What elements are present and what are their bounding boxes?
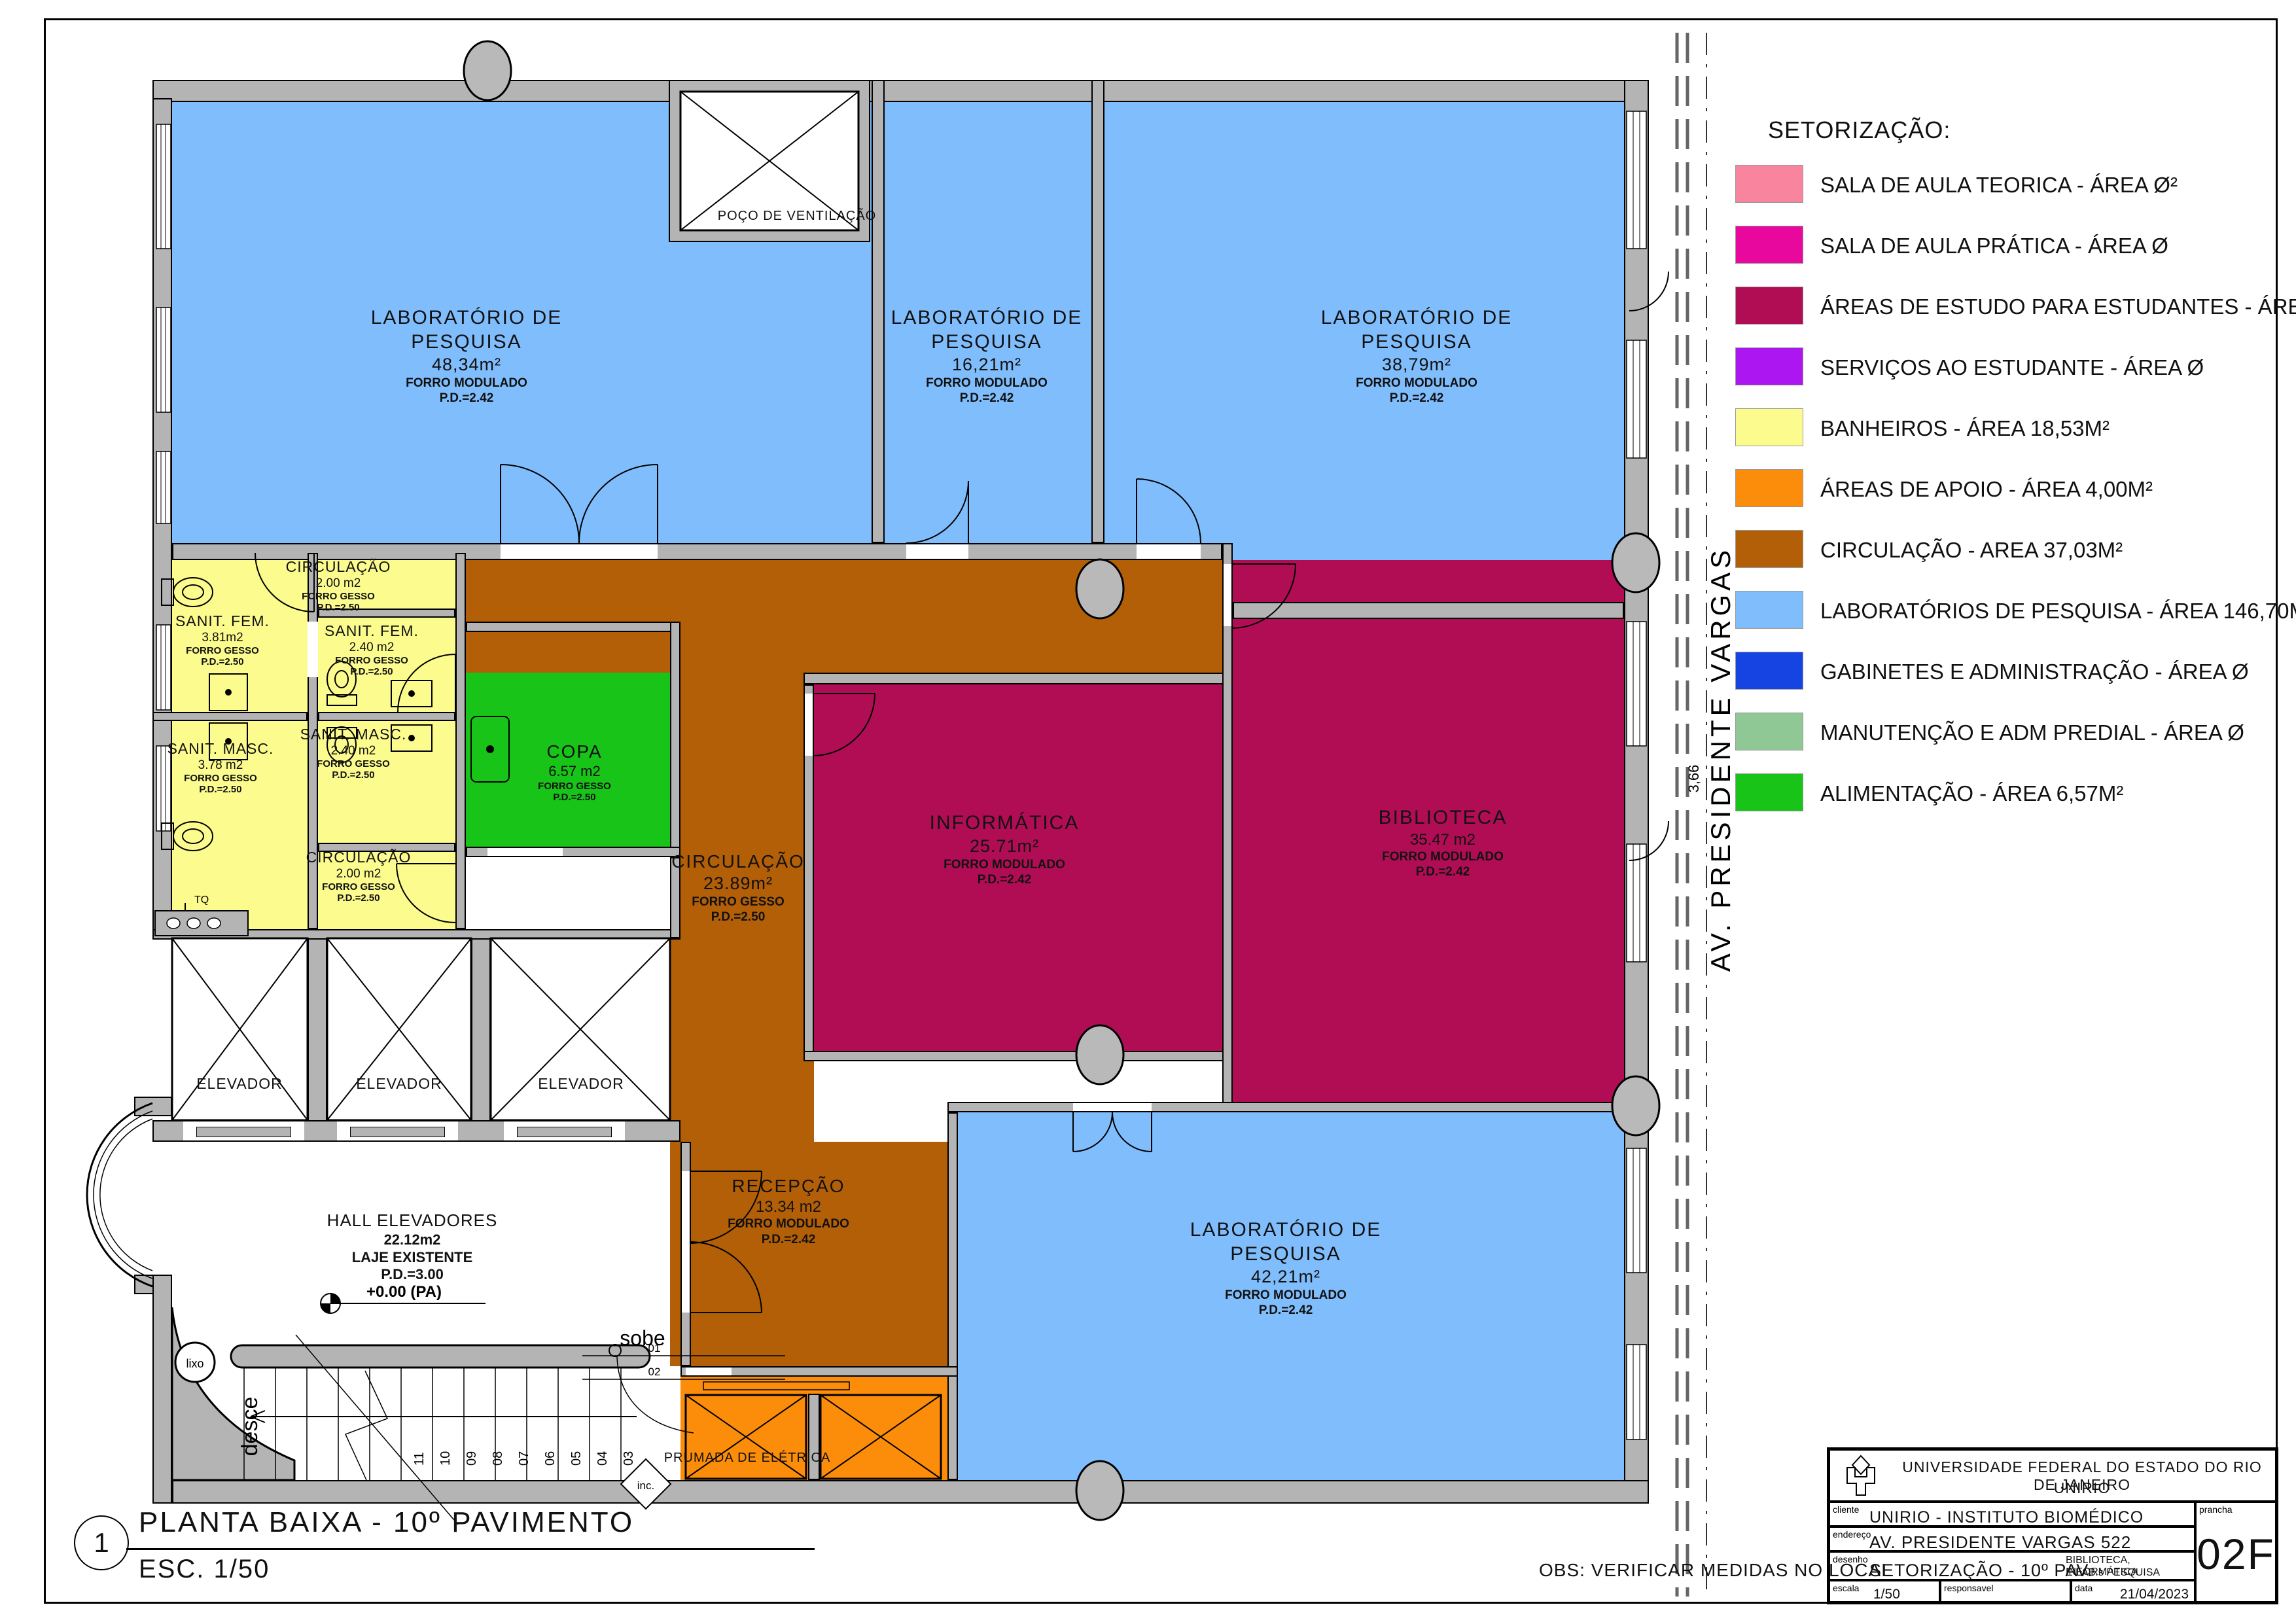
legend-item: ÁREAS DE APOIO - ÁREA 4,00M² [1735, 469, 2278, 507]
legend-swatch [1735, 347, 1803, 385]
wall [947, 1112, 958, 1480]
legend-item: CIRCULAÇÃO - AREA 37,03M² [1735, 530, 2278, 568]
drawing-title: PLANTA BAIXA - 10º PAVIMENTO [139, 1506, 634, 1539]
label-circ-bottom: CIRCULAÇÃO 2.00 m2 FORRO GESSOP.D.=2.50 [306, 848, 412, 904]
scale-value: 1/50 [1873, 1587, 1900, 1602]
label-prumada: PRUMADA DE ELÉTRICA [664, 1450, 831, 1466]
label-lab2: LABORATÓRIO DEPESQUISA 16,21m² FORRO MOD… [891, 306, 1083, 406]
wall [308, 938, 327, 1121]
legend-item: GABINETES E ADMINISTRAÇÃO - ÁREA Ø [1735, 652, 2278, 690]
wall [1233, 602, 1624, 619]
wall [152, 98, 172, 938]
drawing-title-value: SETORIZAÇÃO - 10º PAV. [1869, 1561, 2093, 1581]
legend-item: LABORATÓRIOS DE PESQUISA - ÁREA 146,70M² [1735, 591, 2278, 629]
legend-swatch [1735, 652, 1803, 690]
wall [318, 712, 455, 721]
legend-swatch [1735, 591, 1803, 629]
label-lab4: LABORATÓRIO DEPESQUISA 42,21m² FORRO MOD… [1190, 1218, 1382, 1318]
date-value: 21/04/2023 [2120, 1587, 2189, 1602]
wall [172, 1480, 1649, 1504]
label-sanit-masc-2: SANIT. MASC. 2.40 m2 FORRO GESSOP.D.=2.5… [300, 725, 407, 781]
wall [808, 1394, 820, 1480]
drawing-sheet: lixo 11 10 09 08 07 06 05 04 [0, 0, 2296, 1624]
label-hall: HALL ELEVADORES 22.12m2 LAJE EXISTENTE P… [327, 1210, 498, 1284]
door-opening [682, 1171, 690, 1313]
wall [466, 622, 680, 632]
elevator-door [517, 1127, 612, 1137]
label-elevador-2: ELEVADOR [356, 1074, 442, 1093]
titleblock-endereco: endereço AV. PRESIDENTE VARGAS 522 [1829, 1527, 2195, 1551]
wall [804, 673, 1233, 684]
wall [152, 929, 680, 940]
titleblock-prancha: prancha 02F [2195, 1502, 2276, 1602]
label-circ-top: CIRCULAÇÃO 2.00 m2 FORRO GESSOP.D.=2.50 [286, 557, 391, 614]
label-biblioteca: BIBLIOTECA 35.47 m2 FORRO MODULADOP.D.=2… [1379, 806, 1508, 879]
legend-item: MANUTENÇÃO E ADM PREDIAL - ÁREA Ø [1735, 713, 2278, 750]
titleblock-header: UNIVERSIDADE FEDERAL DO ESTADO DO RIO DE… [1829, 1449, 2276, 1502]
wall [152, 712, 308, 721]
legend-swatch [1735, 287, 1803, 325]
unirio-logo [1838, 1453, 1884, 1499]
legend-swatch [1735, 226, 1803, 264]
legend-swatch [1735, 469, 1803, 507]
label-lab1: LABORATÓRIO DEPESQUISA 48,34m² FORRO MOD… [371, 306, 563, 406]
door-opening [1137, 544, 1201, 559]
label-sanit-fem-1: SANIT. FEM. 3.81m2 FORRO GESSOP.D.=2.50 [175, 612, 270, 668]
door-opening [1073, 1103, 1152, 1111]
wall [455, 553, 466, 929]
wall [134, 1097, 172, 1116]
legend-item: SALA DE AULA TEORICA - ÁREA Ø² [1735, 165, 2278, 203]
door-opening [805, 694, 813, 756]
titleblock-escala: escala 1/50 [1829, 1580, 1940, 1602]
wall [1624, 80, 1649, 1504]
door-opening [1224, 564, 1231, 626]
legend-swatch [1735, 408, 1803, 446]
label-recepcao: RECEPÇÃO 13.34 m2 FORRO MODULADOP.D.=2.4… [728, 1175, 849, 1247]
legend-item: BANHEIROS - ÁREA 18,53M² [1735, 408, 2278, 446]
title-underline [126, 1548, 815, 1550]
door-opening [906, 544, 968, 559]
org-acronym: UNIRIO [1892, 1479, 2272, 1497]
wall [947, 1102, 1624, 1112]
legend-swatch [1735, 165, 1803, 203]
door-opening [501, 544, 658, 559]
label-elevador-1: ELEVADOR [196, 1074, 283, 1093]
legend-swatch [1735, 530, 1803, 568]
label-sanit-masc-1: SANIT. MASC. 3.78 m2 FORRO GESSOP.D.=2.5… [168, 739, 274, 796]
legend-item: SALA DE AULA PRÁTICA - ÁREA Ø [1735, 226, 2278, 264]
door-opening [308, 622, 318, 677]
wall [152, 1275, 172, 1504]
drawing-index-bubble: 1 [74, 1515, 129, 1570]
elevator-door [196, 1127, 291, 1137]
room-circulacao-a [466, 553, 1222, 673]
legend-swatch [1735, 773, 1803, 811]
wall [804, 1051, 1233, 1061]
legend-title: SETORIZAÇÃO: [1768, 116, 1951, 144]
door-opening [686, 1368, 732, 1375]
wall [152, 80, 1649, 102]
wall [1091, 80, 1104, 543]
wall [670, 622, 680, 857]
address-value: AV. PRESIDENTE VARGAS 522 [1869, 1532, 2131, 1553]
sheet-number: 02F [2197, 1529, 2275, 1579]
elevator-door [350, 1127, 445, 1137]
label-circulacao: CIRCULAÇÃO 23.89m² FORRO GESSOP.D.=2.50 [671, 851, 805, 925]
titleblock-cliente: cliente UNIRIO - INSTITUTO BIOMÉDICO [1829, 1502, 2195, 1527]
titleblock-data: data 21/04/2023 [2071, 1580, 2195, 1602]
wall [471, 938, 491, 1121]
label-informatica: INFORMÁTICA 25.71m² FORRO MODULADOP.D.=2… [930, 811, 1080, 887]
label-lab3: LABORATÓRIO DEPESQUISA 38,79m² FORRO MOD… [1321, 306, 1513, 406]
obs-note: OBS: VERIFICAR MEDIDAS NO LOCAL [1539, 1560, 1892, 1581]
client-value: UNIRIO - INSTITUTO BIOMÉDICO [1869, 1508, 2144, 1527]
door-opening [487, 848, 563, 856]
label-copa: COPA 6.57 m2 FORRO GESSOP.D.=2.50 [538, 741, 611, 803]
drawing-scale: ESC. 1/50 [139, 1555, 270, 1584]
drawing-subtitle-2: E LAB.s PESQUISA [2066, 1567, 2160, 1579]
legend-swatch [1735, 713, 1803, 750]
legend-item: ÁREAS DE ESTUDO PARA ESTUDANTES - ÁREA 6… [1735, 287, 2278, 325]
wall [1222, 543, 1233, 1112]
label-sanit-fem-2: SANIT. FEM. 2.40 m2 FORRO GESSOP.D.=2.50 [325, 622, 419, 678]
label-elevador-3: ELEVADOR [538, 1074, 624, 1093]
label-poco: POÇO DE VENTILAÇÃO [718, 208, 877, 224]
legend-item: SERVIÇOS AO ESTUDANTE - ÁREA Ø [1735, 347, 2278, 385]
wall [872, 80, 885, 543]
legend-item: ALIMENTAÇÃO - ÁREA 6,57M² [1735, 773, 2278, 811]
title-block: UNIVERSIDADE FEDERAL DO ESTADO DO RIO DE… [1827, 1447, 2278, 1604]
titleblock-responsavel: responsavel [1940, 1580, 2071, 1602]
